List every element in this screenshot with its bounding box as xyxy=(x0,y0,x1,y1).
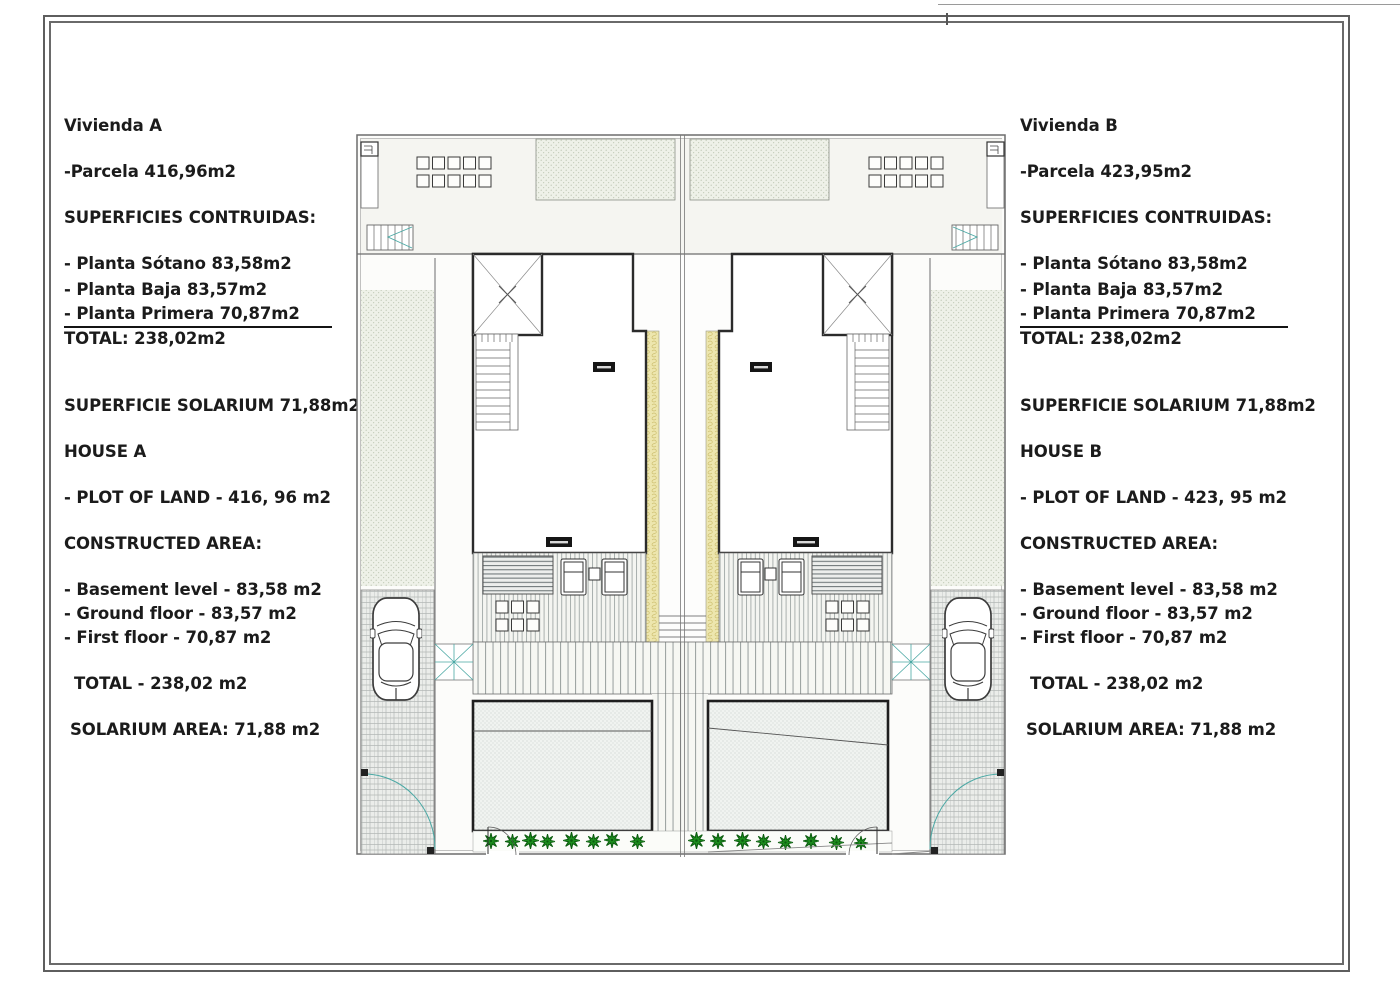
canopy-a xyxy=(435,644,473,680)
car-a-icon xyxy=(370,598,422,700)
house-a-basement: - Basement level - 83,58 m2 xyxy=(64,580,322,599)
stairs-a xyxy=(476,334,518,430)
sheet-edge-artifact xyxy=(938,4,1400,5)
house-b-solarium: SOLARIUM AREA: 71,88 m2 xyxy=(1020,720,1276,739)
house-a-first: - First floor - 70,87 m2 xyxy=(64,628,271,647)
terrace-stairs-b xyxy=(952,225,998,250)
vivienda-a-planta-sotano: - Planta Sótano 83,58m2 xyxy=(64,254,292,273)
walkway-band xyxy=(473,642,892,694)
vivienda-b-solarium: SUPERFICIE SOLARIUM 71,88m2 xyxy=(1020,396,1316,415)
site-plan xyxy=(350,124,1015,864)
deck-b xyxy=(719,553,892,642)
garden-strip-b xyxy=(931,290,1004,586)
house-a-ground: - Ground floor - 83,57 m2 xyxy=(64,604,297,623)
house-b-ground: - Ground floor - 83,57 m2 xyxy=(1020,604,1253,623)
terrace-stairs-a xyxy=(367,225,413,250)
vivienda-a-parcela: -Parcela 416,96m2 xyxy=(64,162,236,181)
central-passage xyxy=(633,256,732,642)
pool-a xyxy=(473,701,652,831)
house-b-footprint xyxy=(719,254,892,553)
sheet-edge-tick xyxy=(946,13,948,25)
house-a-footprint xyxy=(473,254,646,553)
pergola-b xyxy=(812,556,882,594)
pergola-a xyxy=(483,556,553,594)
plan-sheet: Vivienda A -Parcela 416,96m2 SUPERFICIES… xyxy=(0,0,1400,990)
pool-b xyxy=(708,701,888,831)
planter-bed-b xyxy=(690,139,829,200)
house-a-heading: HOUSE A xyxy=(64,442,146,461)
vivienda-a-planta-primera: - Planta Primera 70,87m2 xyxy=(64,304,332,328)
house-b-heading: HOUSE B xyxy=(1020,442,1102,461)
house-b-total: TOTAL - 238,02 m2 xyxy=(1020,674,1203,693)
house-a-total: TOTAL - 238,02 m2 xyxy=(64,674,247,693)
vivienda-a-title: Vivienda A xyxy=(64,116,162,135)
house-a-plot: - PLOT OF LAND - 416, 96 m2 xyxy=(64,488,331,507)
party-wall-b xyxy=(706,331,719,642)
walkway-center xyxy=(652,694,708,831)
garden-strip-a xyxy=(361,290,434,586)
panel-vivienda-a: Vivienda A -Parcela 416,96m2 SUPERFICIES… xyxy=(64,112,394,772)
terrace-band xyxy=(357,139,1005,254)
house-b-basement: - Basement level - 83,58 m2 xyxy=(1020,580,1278,599)
vivienda-a-solarium: SUPERFICIE SOLARIUM 71,88m2 xyxy=(64,396,360,415)
vivienda-b-title: Vivienda B xyxy=(1020,116,1118,135)
vivienda-b-parcela: -Parcela 423,95m2 xyxy=(1020,162,1192,181)
house-b-plot: - PLOT OF LAND - 423, 95 m2 xyxy=(1020,488,1287,507)
house-a-constructed: CONSTRUCTED AREA: xyxy=(64,534,262,553)
car-b-icon xyxy=(942,598,994,700)
house-b-first: - First floor - 70,87 m2 xyxy=(1020,628,1227,647)
house-a-solarium: SOLARIUM AREA: 71,88 m2 xyxy=(64,720,320,739)
stairs-b xyxy=(847,334,889,430)
party-wall-a xyxy=(646,331,659,642)
vivienda-b-superficies: SUPERFICIES CONTRUIDAS: xyxy=(1020,208,1272,227)
vivienda-a-total: TOTAL: 238,02m2 xyxy=(64,329,226,348)
deck-a xyxy=(473,553,646,642)
vivienda-b-planta-sotano: - Planta Sótano 83,58m2 xyxy=(1020,254,1248,273)
vivienda-b-total: TOTAL: 238,02m2 xyxy=(1020,329,1182,348)
canopy-b xyxy=(892,644,930,680)
house-b-constructed: CONSTRUCTED AREA: xyxy=(1020,534,1218,553)
vivienda-a-superficies: SUPERFICIES CONTRUIDAS: xyxy=(64,208,316,227)
planter-bed-a xyxy=(536,139,675,200)
vivienda-a-planta-baja: - Planta Baja 83,57m2 xyxy=(64,280,267,299)
panel-vivienda-b: Vivienda B -Parcela 423,95m2 SUPERFICIES… xyxy=(1020,112,1350,772)
vivienda-b-planta-primera: - Planta Primera 70,87m2 xyxy=(1020,304,1288,328)
vivienda-b-planta-baja: - Planta Baja 83,57m2 xyxy=(1020,280,1223,299)
